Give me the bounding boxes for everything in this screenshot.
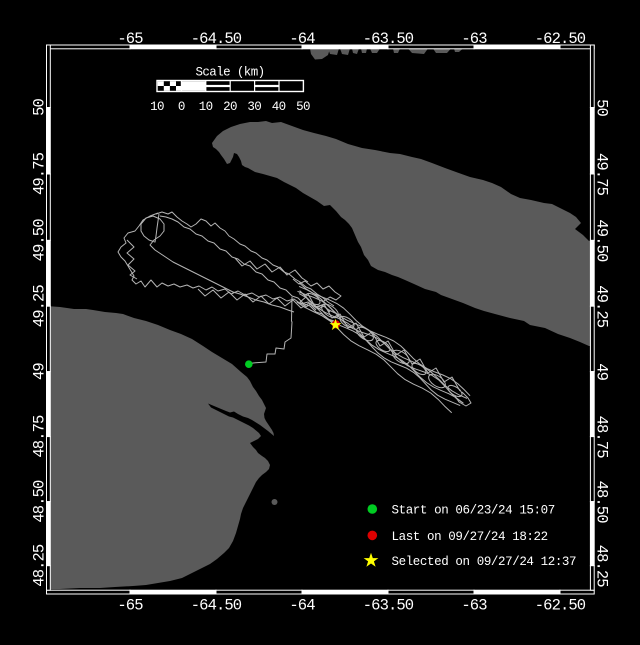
- svg-text:50: 50: [593, 99, 611, 116]
- svg-text:-63.50: -63.50: [363, 30, 414, 48]
- svg-text:48.50: 48.50: [31, 480, 49, 523]
- svg-text:48.75: 48.75: [593, 416, 611, 459]
- svg-text:49.75: 49.75: [31, 152, 49, 195]
- svg-text:10: 10: [199, 100, 213, 114]
- svg-text:40: 40: [272, 100, 286, 114]
- svg-text:-64: -64: [289, 30, 315, 48]
- svg-text:-62.50: -62.50: [535, 30, 586, 48]
- svg-text:Last on 09/27/24 18:22: Last on 09/27/24 18:22: [392, 530, 548, 544]
- svg-text:-63: -63: [461, 30, 487, 48]
- svg-text:Scale (km): Scale (km): [195, 66, 264, 80]
- svg-text:49.25: 49.25: [593, 285, 611, 328]
- svg-text:-63: -63: [461, 597, 487, 615]
- svg-text:20: 20: [223, 100, 237, 114]
- svg-text:48.25: 48.25: [593, 545, 611, 588]
- svg-text:49.50: 49.50: [31, 219, 49, 262]
- svg-text:48.75: 48.75: [31, 415, 49, 458]
- svg-text:-64: -64: [289, 597, 315, 615]
- svg-text:-65: -65: [117, 597, 143, 615]
- svg-text:-65: -65: [117, 30, 143, 48]
- svg-text:50: 50: [296, 100, 310, 114]
- svg-text:-64.50: -64.50: [191, 30, 242, 48]
- svg-text:49.25: 49.25: [31, 285, 49, 328]
- svg-text:48.25: 48.25: [31, 544, 49, 587]
- svg-text:50: 50: [31, 99, 49, 116]
- svg-text:49.75: 49.75: [593, 153, 611, 196]
- svg-text:10: 10: [150, 100, 164, 114]
- svg-text:0: 0: [178, 100, 185, 114]
- svg-text:30: 30: [247, 100, 261, 114]
- svg-text:-62.50: -62.50: [535, 597, 586, 615]
- svg-text:-63.50: -63.50: [363, 597, 414, 615]
- svg-text:Selected on 09/27/24 12:37: Selected on 09/27/24 12:37: [392, 555, 577, 569]
- svg-text:Start on 06/23/24 15:07: Start on 06/23/24 15:07: [392, 504, 555, 518]
- svg-text:49: 49: [593, 363, 611, 380]
- svg-text:-64.50: -64.50: [191, 597, 242, 615]
- svg-text:48.50: 48.50: [593, 481, 611, 524]
- svg-text:49: 49: [31, 363, 49, 380]
- svg-text:49.50: 49.50: [593, 219, 611, 262]
